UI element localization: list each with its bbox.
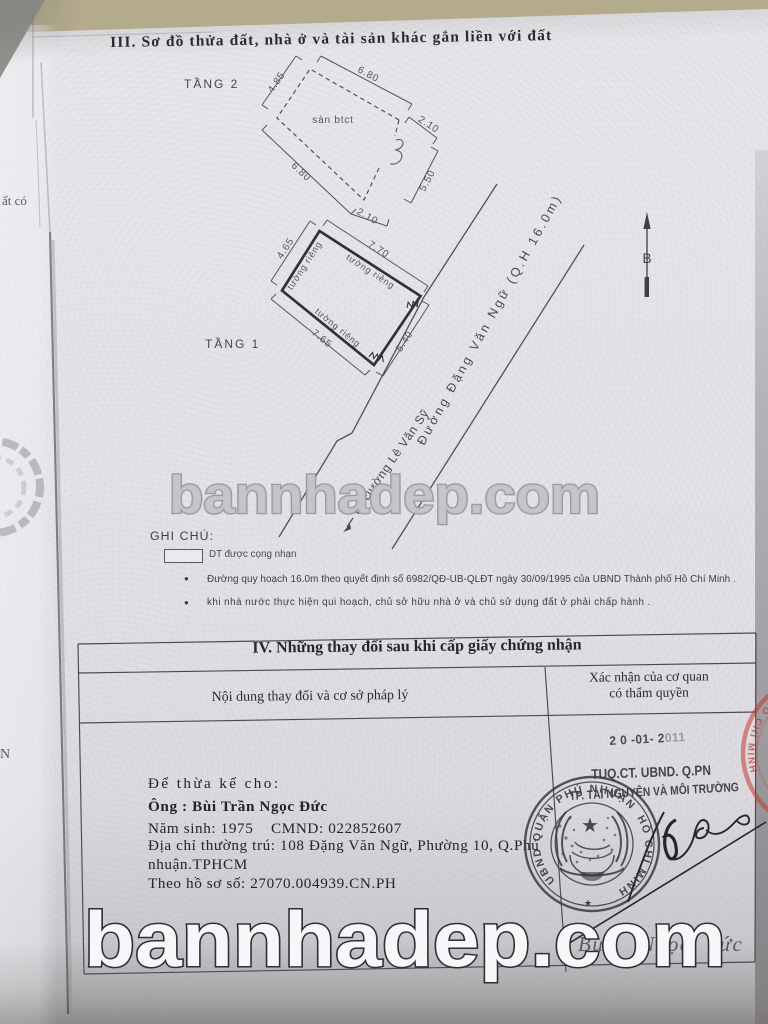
svg-text:HỒ CHÍ MINH: HỒ CHÍ MINH (615, 814, 654, 899)
svg-text:bannhadep.com: bannhadep.com (84, 895, 726, 983)
svg-text:★: ★ (581, 815, 599, 837)
